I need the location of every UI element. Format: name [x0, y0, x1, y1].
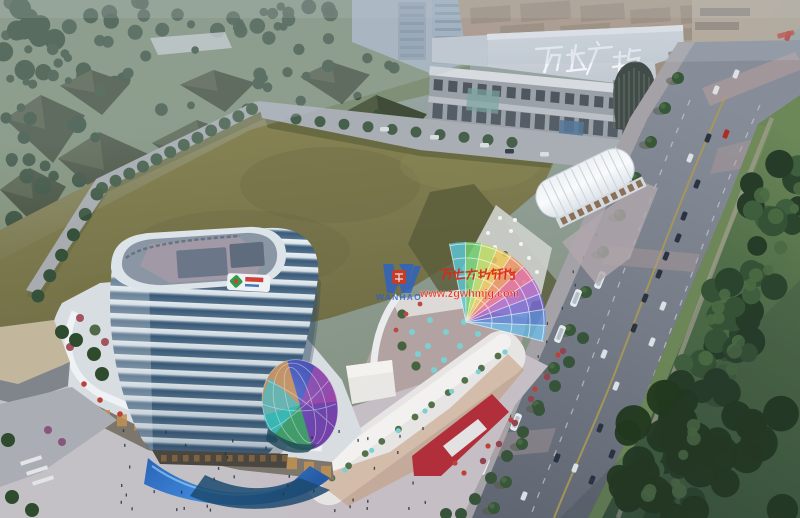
svg-text:WANHAO: WANHAO: [376, 292, 422, 302]
svg-text:www.zgwhmjg.com: www.zgwhmjg.com: [419, 288, 519, 300]
